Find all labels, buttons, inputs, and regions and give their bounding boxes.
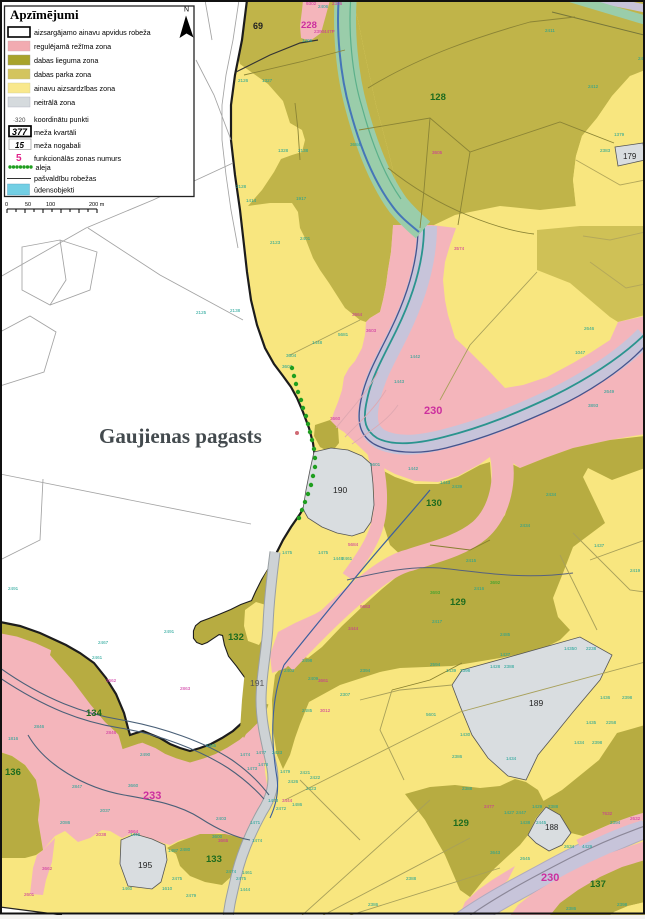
svg-text:2423: 2423: [272, 750, 283, 755]
svg-text:1434: 1434: [506, 756, 517, 761]
svg-text:5681: 5681: [338, 332, 349, 337]
svg-text:2388: 2388: [504, 664, 515, 669]
svg-text:3444: 3444: [282, 798, 293, 803]
svg-text:2038: 2038: [96, 832, 107, 837]
svg-text:1379: 1379: [614, 132, 625, 137]
svg-text:1475: 1475: [318, 550, 329, 555]
svg-text:5: 5: [16, 153, 22, 164]
svg-text:190: 190: [333, 485, 347, 495]
svg-text:1610: 1610: [162, 886, 173, 891]
svg-text:meža nogabali: meža nogabali: [34, 141, 81, 150]
svg-text:2383: 2383: [600, 148, 611, 153]
svg-text:3693: 3693: [430, 590, 441, 595]
svg-text:228: 228: [301, 20, 317, 31]
svg-text:2086: 2086: [60, 820, 71, 825]
svg-text:134: 134: [86, 708, 103, 719]
svg-text:1406: 1406: [302, 38, 313, 43]
svg-text:2238: 2238: [586, 646, 597, 651]
svg-text:1414: 1414: [246, 198, 257, 203]
svg-text:2491: 2491: [8, 586, 19, 591]
svg-text:1428: 1428: [490, 664, 501, 669]
svg-text:3664: 3664: [128, 829, 139, 834]
svg-text:2846: 2846: [34, 724, 45, 729]
svg-text:2307: 2307: [340, 692, 351, 697]
svg-text:1816: 1816: [8, 736, 19, 741]
svg-text:2422: 2422: [310, 775, 321, 780]
svg-text:2649: 2649: [604, 389, 615, 394]
svg-text:1461: 1461: [242, 870, 253, 875]
svg-text:2601: 2601: [24, 892, 35, 897]
svg-text:0: 0: [5, 202, 8, 208]
svg-text:2386: 2386: [452, 754, 463, 759]
svg-text:2461: 2461: [342, 556, 353, 561]
svg-text:1442: 1442: [408, 466, 419, 471]
svg-text:3692: 3692: [490, 580, 501, 585]
svg-text:14350: 14350: [564, 646, 577, 651]
svg-text:2447: 2447: [516, 810, 527, 815]
svg-text:1448: 1448: [312, 340, 323, 345]
svg-text:meža kvartāli: meža kvartāli: [34, 128, 77, 137]
svg-text:195: 195: [138, 860, 152, 870]
svg-text:1430: 1430: [460, 732, 471, 737]
svg-text:2423: 2423: [306, 786, 317, 791]
svg-text:130: 130: [426, 498, 442, 509]
svg-text:2479: 2479: [186, 893, 197, 898]
svg-text:447P: 447P: [324, 29, 335, 34]
svg-text:1471: 1471: [250, 820, 261, 825]
svg-text:2401: 2401: [300, 236, 311, 241]
svg-text:230: 230: [424, 405, 442, 417]
svg-text:15: 15: [15, 141, 24, 150]
svg-text:2475: 2475: [236, 876, 247, 881]
svg-text:1486: 1486: [292, 802, 303, 807]
svg-text:1460: 1460: [122, 886, 133, 891]
svg-text:aizsargājamo ainavu apvidus ro: aizsargājamo ainavu apvidus robeža: [34, 28, 151, 37]
svg-text:179: 179: [623, 152, 637, 161]
svg-text:2645: 2645: [520, 856, 531, 861]
svg-text:2474: 2474: [226, 869, 237, 874]
svg-text:3661: 3661: [318, 678, 329, 683]
svg-text:5601: 5601: [426, 712, 437, 717]
svg-text:3444: 3444: [348, 626, 359, 631]
svg-text:2632: 2632: [630, 816, 641, 821]
svg-text:233: 233: [143, 790, 161, 802]
svg-text:1327: 1327: [262, 78, 273, 83]
svg-text:N: N: [184, 7, 189, 14]
svg-text:2498: 2498: [302, 658, 313, 663]
svg-text:2398: 2398: [592, 740, 603, 745]
svg-text:2847: 2847: [72, 784, 83, 789]
svg-text:2403: 2403: [284, 668, 295, 673]
svg-text:189: 189: [529, 698, 543, 708]
svg-text:129: 129: [453, 818, 469, 829]
svg-text:2388: 2388: [462, 786, 473, 791]
svg-text:2386: 2386: [368, 902, 379, 907]
svg-text:ūdensobjekti: ūdensobjekti: [34, 186, 75, 195]
svg-text:137: 137: [590, 879, 606, 890]
svg-text:5684: 5684: [348, 542, 359, 547]
svg-text:neitrālā zona: neitrālā zona: [34, 98, 75, 107]
svg-text:1487: 1487: [168, 848, 179, 853]
svg-text:7632: 7632: [602, 811, 613, 816]
svg-text:2398: 2398: [460, 668, 471, 673]
svg-text:1444: 1444: [240, 887, 251, 892]
svg-text:2491: 2491: [164, 629, 175, 634]
svg-text:3684: 3684: [350, 142, 361, 147]
svg-text:1478: 1478: [258, 762, 269, 767]
svg-text:aleja: aleja: [36, 163, 51, 172]
svg-text:2394: 2394: [610, 820, 621, 825]
svg-text:2646: 2646: [584, 326, 595, 331]
svg-text:2394: 2394: [360, 668, 371, 673]
svg-text:2411: 2411: [545, 28, 555, 33]
svg-text:3662: 3662: [42, 866, 53, 871]
svg-text:dabas lieguma zona: dabas lieguma zona: [34, 56, 98, 65]
svg-text:50: 50: [25, 202, 31, 208]
svg-text:2863: 2863: [180, 686, 191, 691]
svg-text:1917: 1917: [296, 196, 307, 201]
svg-text:2465: 2465: [206, 743, 217, 748]
svg-text:3605: 3605: [432, 150, 443, 155]
svg-text:1439: 1439: [446, 668, 457, 673]
svg-text:koordinātu punkti: koordinātu punkti: [34, 115, 89, 124]
svg-text:2472: 2472: [276, 806, 287, 811]
svg-text:2490: 2490: [140, 752, 151, 757]
svg-text:2125: 2125: [196, 310, 207, 315]
svg-text:2417: 2417: [432, 619, 443, 624]
svg-text:1437: 1437: [500, 652, 511, 657]
svg-text:2138: 2138: [298, 148, 309, 153]
svg-text:69: 69: [253, 21, 263, 31]
svg-text:3660: 3660: [128, 783, 139, 788]
svg-text:128: 128: [430, 92, 446, 103]
svg-text:1479: 1479: [280, 769, 291, 774]
svg-text:1443: 1443: [440, 480, 451, 485]
svg-text:2138: 2138: [230, 308, 241, 313]
svg-text:Gaujienas pagasts: Gaujienas pagasts: [99, 424, 262, 448]
svg-text:2439: 2439: [452, 484, 463, 489]
svg-text:dabas parka zona: dabas parka zona: [34, 70, 91, 79]
svg-text:132: 132: [228, 632, 244, 643]
svg-text:1047: 1047: [575, 350, 586, 355]
svg-text:3643: 3643: [490, 850, 501, 855]
svg-text:2434: 2434: [520, 523, 531, 528]
svg-text:1434: 1434: [574, 740, 585, 745]
svg-text:1477: 1477: [256, 750, 267, 755]
svg-text:2485: 2485: [302, 708, 313, 713]
svg-text:9663: 9663: [360, 604, 371, 609]
svg-text:2434: 2434: [546, 492, 557, 497]
svg-text:2419: 2419: [630, 568, 641, 573]
svg-text:200 m: 200 m: [89, 202, 105, 208]
svg-text:2388: 2388: [406, 876, 417, 881]
svg-text:3662: 3662: [106, 678, 117, 683]
svg-text:2416: 2416: [474, 586, 485, 591]
svg-text:1328: 1328: [278, 148, 289, 153]
svg-text:3574: 3574: [454, 246, 465, 251]
svg-text:188: 188: [545, 823, 559, 832]
svg-text:2467: 2467: [98, 640, 109, 645]
svg-text:3665: 3665: [218, 838, 229, 843]
svg-text:2406: 2406: [318, 4, 329, 9]
svg-text:3012: 3012: [320, 708, 331, 713]
svg-text:129: 129: [450, 597, 466, 608]
svg-text:1438: 1438: [520, 820, 531, 825]
svg-text:1429: 1429: [532, 804, 543, 809]
svg-text:1436: 1436: [600, 695, 611, 700]
svg-text:pašvaldību robežas: pašvaldību robežas: [34, 174, 97, 183]
svg-text:3893: 3893: [588, 403, 599, 408]
svg-text:3660: 3660: [330, 416, 341, 421]
svg-text:136: 136: [5, 767, 21, 778]
svg-text:1435: 1435: [586, 720, 597, 725]
svg-text:Apzīmējumi: Apzīmējumi: [10, 7, 79, 22]
svg-text:4429: 4429: [582, 844, 593, 849]
svg-text:2123: 2123: [270, 240, 281, 245]
svg-text:ainavu aizsardzības zona: ainavu aizsardzības zona: [34, 84, 115, 93]
svg-text:2126: 2126: [238, 78, 249, 83]
svg-text:2403: 2403: [216, 816, 227, 821]
svg-text:3604: 3604: [286, 353, 297, 358]
svg-text:133: 133: [206, 854, 222, 865]
svg-text:2846: 2846: [106, 730, 117, 735]
svg-text:regulējamā režīma zona: regulējamā režīma zona: [34, 42, 111, 51]
svg-text:3664: 3664: [352, 312, 363, 317]
svg-text:1474: 1474: [240, 752, 251, 757]
svg-text:2388: 2388: [548, 804, 559, 809]
svg-text:2037: 2037: [100, 808, 111, 813]
svg-text:2634: 2634: [564, 844, 575, 849]
svg-text:3603: 3603: [366, 328, 377, 333]
svg-text:1475: 1475: [282, 550, 293, 555]
svg-text:191: 191: [250, 678, 264, 688]
svg-text:230: 230: [541, 872, 559, 884]
svg-text:1473: 1473: [247, 766, 258, 771]
svg-text:1427: 1427: [504, 810, 515, 815]
svg-text:2398: 2398: [617, 902, 628, 907]
svg-text:100: 100: [46, 202, 55, 208]
svg-text:2480: 2480: [180, 847, 191, 852]
svg-text:2412: 2412: [588, 84, 599, 89]
svg-text:5601: 5601: [370, 462, 381, 467]
svg-text:2477: 2477: [484, 804, 495, 809]
svg-text:2128: 2128: [236, 184, 247, 189]
svg-text:1437: 1437: [594, 543, 605, 548]
svg-text:1474: 1474: [252, 838, 263, 843]
svg-text:funkcionālās zonas numurs: funkcionālās zonas numurs: [34, 154, 122, 163]
svg-text:2398: 2398: [622, 695, 633, 700]
svg-text:2258: 2258: [606, 720, 617, 725]
svg-text:2485: 2485: [500, 632, 511, 637]
svg-text:1442: 1442: [410, 354, 421, 359]
svg-text:·320: ·320: [13, 117, 26, 124]
svg-text:2415: 2415: [466, 558, 477, 563]
svg-text:2594: 2594: [430, 662, 441, 667]
svg-text:2461: 2461: [92, 655, 103, 660]
svg-text:2386: 2386: [566, 906, 577, 911]
svg-text:2426: 2426: [288, 779, 299, 784]
svg-text:377: 377: [12, 127, 28, 137]
svg-text:1473: 1473: [268, 798, 279, 803]
svg-text:1443: 1443: [394, 379, 405, 384]
svg-text:2475: 2475: [172, 876, 183, 881]
